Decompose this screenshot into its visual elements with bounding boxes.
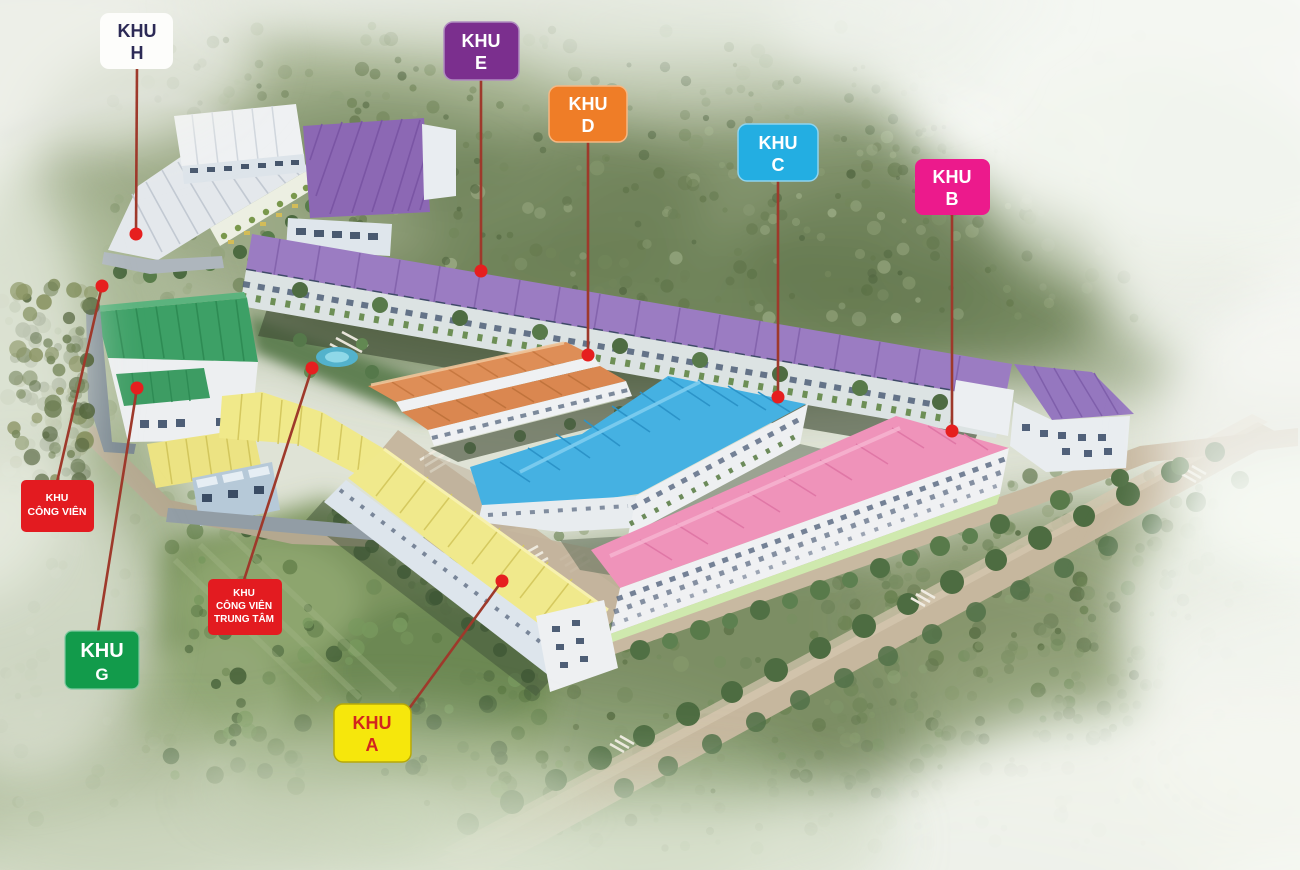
svg-text:KHU: KHU xyxy=(46,492,69,504)
svg-text:KHU: KHU xyxy=(933,167,972,187)
svg-text:KHU: KHU xyxy=(233,588,255,599)
svg-text:D: D xyxy=(582,116,595,136)
svg-text:KHU: KHU xyxy=(353,713,392,733)
svg-text:A: A xyxy=(366,735,379,755)
svg-text:CÔNG VIÊN: CÔNG VIÊN xyxy=(28,505,87,518)
svg-text:E: E xyxy=(475,53,487,73)
svg-text:TRUNG TÂM: TRUNG TÂM xyxy=(214,612,274,625)
svg-text:KHU: KHU xyxy=(118,21,157,41)
svg-text:B: B xyxy=(946,189,959,209)
svg-text:KHU: KHU xyxy=(462,31,501,51)
svg-text:G: G xyxy=(95,665,108,684)
svg-text:KHU: KHU xyxy=(569,94,608,114)
svg-text:KHU: KHU xyxy=(80,640,123,662)
svg-text:KHU: KHU xyxy=(759,133,798,153)
svg-text:CÔNG VIÊN: CÔNG VIÊN xyxy=(216,599,272,612)
svg-text:C: C xyxy=(772,155,785,175)
svg-text:H: H xyxy=(131,43,144,63)
